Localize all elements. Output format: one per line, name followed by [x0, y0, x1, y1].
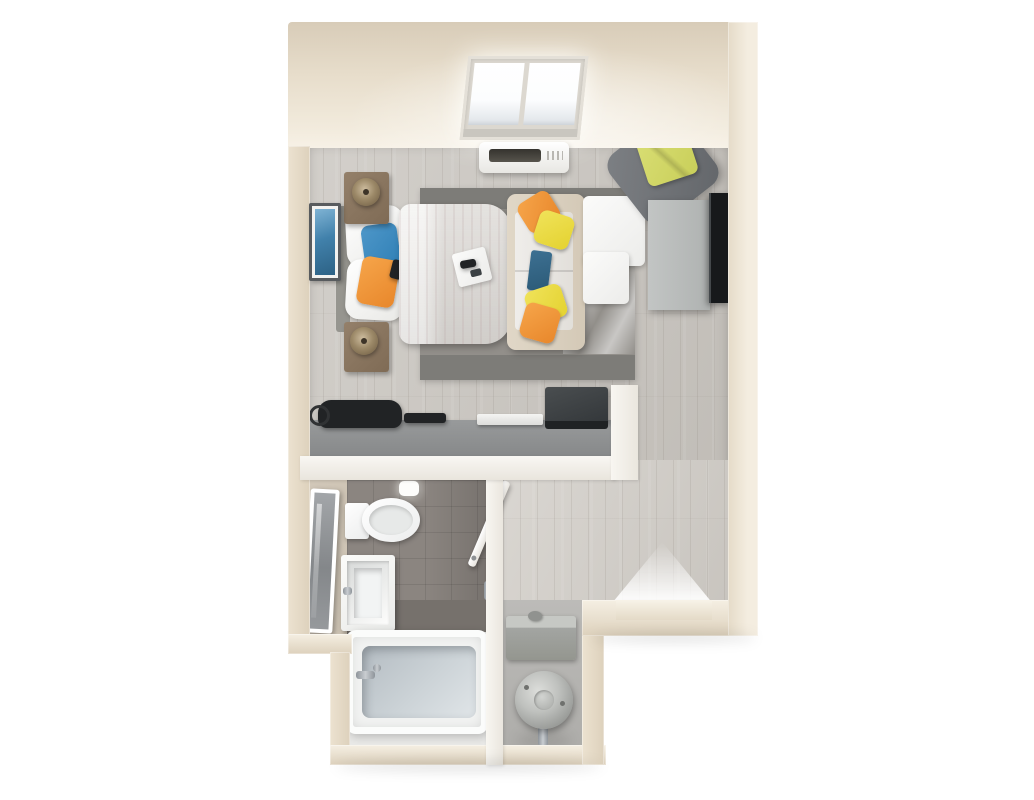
left-wall: [288, 146, 310, 654]
ottoman: [583, 252, 629, 304]
tub-faucet: [356, 671, 375, 679]
bathtub-basin: [362, 646, 476, 718]
furnace-box: [506, 616, 576, 660]
sink-faucet: [343, 587, 352, 595]
furnace-cap: [528, 611, 542, 621]
closet-right-wall: [582, 628, 604, 765]
vanity-sink: [341, 555, 395, 631]
tray-item: [470, 268, 482, 277]
bathroom-hall-divider-wall: [486, 468, 503, 765]
half-wall-face: [300, 456, 615, 480]
picture-frame: [309, 203, 341, 281]
tv: [709, 193, 730, 303]
left-step-wall: [288, 634, 352, 654]
remote-control: [460, 259, 477, 270]
counter-return-wall: [611, 385, 638, 480]
water-heater: [515, 671, 573, 729]
laptop-base: [545, 421, 608, 429]
keyboard: [477, 414, 543, 425]
hallway-floor: [503, 460, 730, 602]
duffel-bag: [318, 400, 402, 428]
mirror-glass: [307, 493, 335, 630]
heater-bolt-right: [560, 701, 565, 706]
slim-case: [404, 413, 446, 423]
unit-shadow-bottom: [336, 761, 602, 771]
ac-vent-slot: [489, 149, 541, 162]
skylight-pane-left: [468, 63, 525, 125]
laptop-screen: [545, 387, 608, 423]
heater-bolt-left: [524, 685, 529, 690]
right-wall: [728, 22, 758, 636]
toilet-bowl: [362, 498, 420, 542]
skylight-sill: [463, 129, 578, 137]
ac-vents: [547, 151, 563, 160]
frame-artwork: [315, 209, 335, 275]
floor-plan-scene: [0, 0, 1034, 800]
tub-handle: [373, 664, 381, 672]
table-lamp-bottom: [350, 327, 378, 355]
skylight: [460, 56, 589, 140]
bed-duvet: [399, 204, 511, 344]
unit-shadow-entry: [592, 633, 756, 642]
ac-unit: [479, 142, 569, 173]
table-lamp-top: [352, 178, 380, 206]
skylight-pane-right: [523, 63, 581, 125]
entry-threshold: [616, 600, 712, 620]
sink-bowl: [354, 568, 382, 618]
tv-stand: [648, 200, 710, 310]
bathroom-ceiling-light: [399, 481, 419, 496]
